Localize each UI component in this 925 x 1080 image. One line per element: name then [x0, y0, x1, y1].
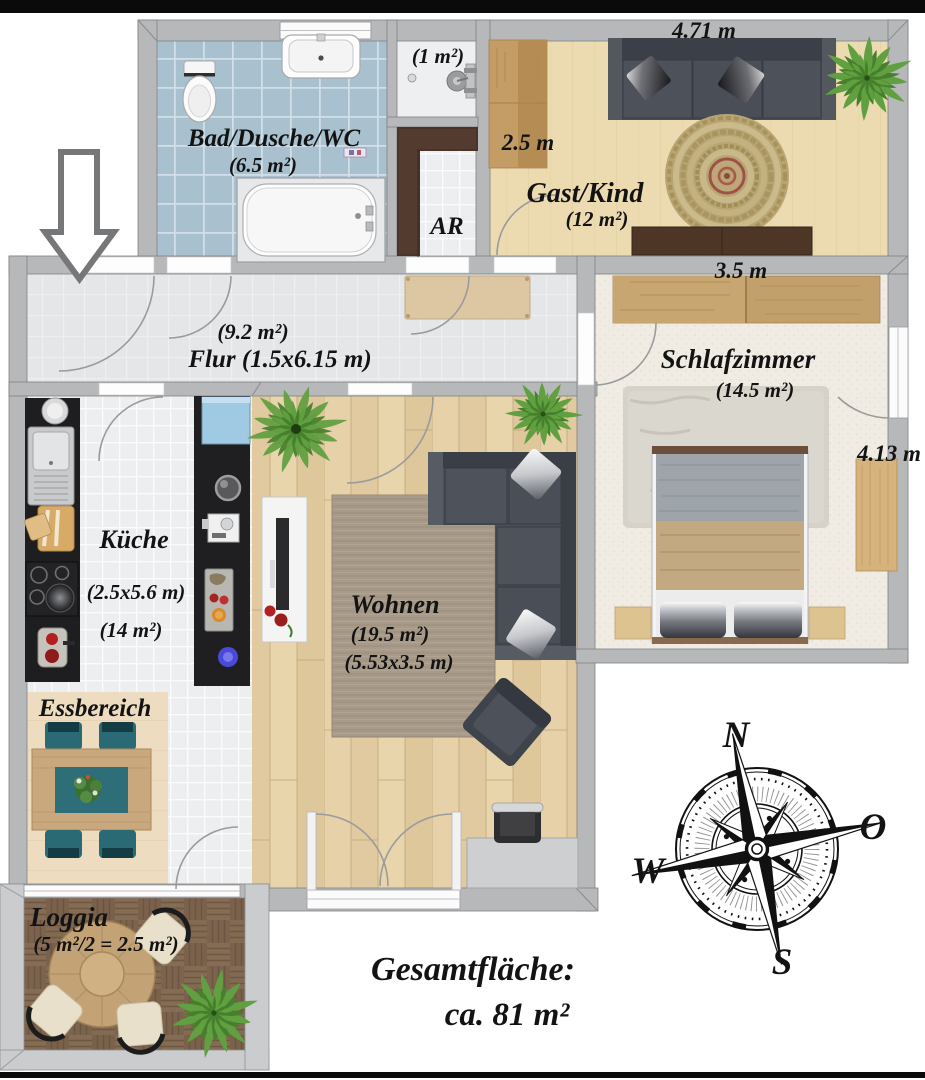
svg-text:Küche: Küche	[98, 525, 168, 554]
svg-text:Gast/Kind: Gast/Kind	[527, 178, 645, 209]
svg-text:(2.5x5.6 m): (2.5x5.6 m)	[87, 580, 186, 604]
svg-text:Essbereich: Essbereich	[38, 695, 152, 722]
svg-text:S: S	[772, 942, 793, 983]
svg-text:(5.53x3.5 m): (5.53x3.5 m)	[344, 650, 453, 674]
svg-text:2.5 m: 2.5 m	[501, 130, 554, 155]
svg-text:(19.5 m²): (19.5 m²)	[351, 622, 430, 646]
svg-text:Gesamtfläche:: Gesamtfläche:	[371, 951, 575, 988]
svg-text:Schlafzimmer: Schlafzimmer	[661, 344, 816, 374]
svg-text:Wohnen: Wohnen	[350, 590, 439, 619]
svg-text:4.71 m: 4.71 m	[671, 18, 736, 43]
svg-text:4.13 m: 4.13 m	[856, 441, 921, 466]
svg-text:O: O	[860, 807, 887, 848]
svg-text:W: W	[632, 851, 668, 892]
svg-text:(14.5 m²): (14.5 m²)	[716, 378, 795, 402]
svg-text:AR: AR	[428, 213, 463, 240]
svg-text:(9.2 m²): (9.2 m²)	[217, 319, 288, 344]
svg-text:(5 m²/2 = 2.5 m²): (5 m²/2 = 2.5 m²)	[33, 932, 178, 956]
svg-text:(12 m²): (12 m²)	[566, 207, 629, 231]
svg-text:ca. 81 m²: ca. 81 m²	[445, 997, 571, 1033]
svg-text:Bad/Dusche/WC: Bad/Dusche/WC	[187, 125, 361, 152]
svg-text:N: N	[722, 715, 751, 756]
svg-text:(6.5 m²): (6.5 m²)	[229, 153, 297, 177]
svg-text:(1 m²): (1 m²)	[412, 44, 464, 68]
svg-text:3.5 m: 3.5 m	[714, 258, 767, 283]
svg-text:Loggia: Loggia	[29, 902, 108, 932]
svg-text:Flur (1.5x6.15 m): Flur (1.5x6.15 m)	[187, 346, 371, 373]
svg-text:(14 m²): (14 m²)	[100, 618, 163, 642]
